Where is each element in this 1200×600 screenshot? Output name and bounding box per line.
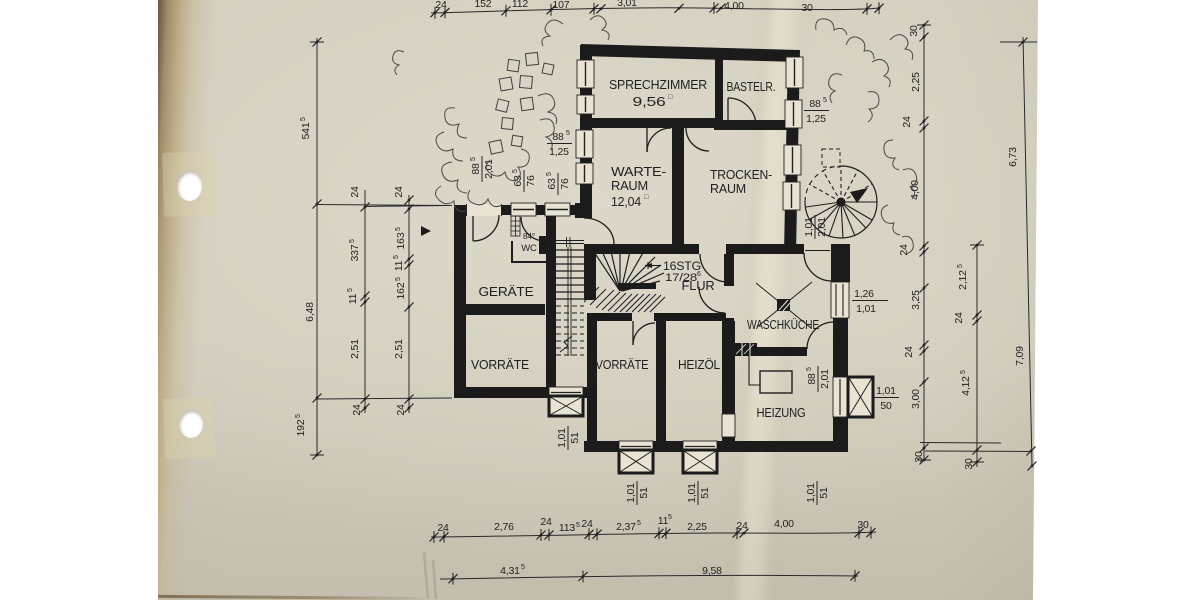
- svg-text:30: 30: [963, 458, 975, 470]
- svg-text:1,01: 1,01: [803, 217, 815, 237]
- svg-text:3,00: 3,00: [910, 389, 922, 409]
- svg-text:5: 5: [512, 169, 519, 173]
- svg-text:4,00: 4,00: [774, 518, 794, 530]
- svg-text:5: 5: [349, 239, 356, 243]
- svg-text:5: 5: [960, 370, 967, 374]
- svg-text:HEIZÖL: HEIZÖL: [678, 358, 720, 372]
- svg-text:2,37: 2,37: [616, 521, 636, 533]
- svg-text:541: 541: [300, 122, 312, 139]
- svg-text:337: 337: [349, 244, 361, 261]
- svg-text:5: 5: [806, 367, 813, 371]
- svg-text:51: 51: [699, 487, 711, 499]
- svg-text:5: 5: [470, 157, 477, 161]
- svg-text:5: 5: [566, 130, 570, 137]
- svg-text:76: 76: [559, 178, 571, 190]
- svg-text:113: 113: [559, 522, 575, 534]
- svg-text:6,48: 6,48: [304, 302, 316, 322]
- svg-text:5: 5: [395, 227, 402, 231]
- svg-text:5: 5: [393, 255, 400, 259]
- svg-text:4,31: 4,31: [500, 565, 520, 577]
- svg-text:6: 6: [697, 271, 701, 278]
- svg-text:17/28: 17/28: [665, 272, 697, 284]
- svg-text:5: 5: [668, 514, 672, 521]
- svg-text:WASCHKÜCHE: WASCHKÜCHE: [747, 318, 819, 332]
- svg-text:24: 24: [736, 520, 748, 532]
- svg-text:1,26: 1,26: [854, 288, 874, 300]
- svg-text:88: 88: [470, 163, 482, 175]
- svg-text:□: □: [644, 194, 649, 201]
- svg-text:RAUM: RAUM: [710, 182, 746, 196]
- svg-text:12,04: 12,04: [611, 194, 641, 209]
- svg-text:1,01: 1,01: [805, 483, 817, 503]
- svg-text:□: □: [668, 94, 673, 101]
- svg-text:2,12: 2,12: [957, 270, 969, 290]
- svg-text:1,01: 1,01: [556, 428, 568, 448]
- svg-text:BASTELR.: BASTELR.: [727, 80, 776, 94]
- svg-text:5: 5: [395, 277, 402, 281]
- svg-text:24: 24: [351, 404, 363, 416]
- svg-text:GERÄTE: GERÄTE: [479, 284, 535, 299]
- svg-text:TROCKEN-: TROCKEN-: [710, 168, 772, 182]
- svg-text:24: 24: [581, 518, 593, 530]
- svg-text:VORRÄTE: VORRÄTE: [471, 357, 529, 372]
- svg-text:24: 24: [435, 0, 447, 11]
- svg-text:2,51: 2,51: [349, 339, 361, 359]
- svg-text:30: 30: [908, 25, 920, 37]
- svg-text:HEIZUNG: HEIZUNG: [757, 406, 806, 420]
- svg-text:24: 24: [540, 516, 552, 528]
- svg-text:3,25: 3,25: [910, 290, 922, 310]
- svg-text:24: 24: [437, 522, 449, 534]
- svg-text:5: 5: [637, 520, 641, 527]
- svg-text:88: 88: [552, 131, 564, 143]
- svg-text:88: 88: [806, 373, 818, 385]
- svg-text:162: 162: [395, 282, 407, 299]
- svg-text:5: 5: [347, 288, 354, 292]
- svg-text:7,09: 7,09: [1014, 346, 1026, 366]
- svg-text:2,01: 2,01: [819, 369, 831, 389]
- svg-text:RAUM: RAUM: [611, 178, 648, 193]
- svg-text:11: 11: [393, 260, 405, 271]
- svg-text:2,25: 2,25: [910, 72, 922, 92]
- svg-text:50: 50: [880, 400, 892, 412]
- svg-text:30: 30: [857, 519, 869, 531]
- svg-text:24: 24: [898, 244, 910, 256]
- svg-text:1,01: 1,01: [686, 483, 698, 503]
- svg-text:2,25: 2,25: [687, 521, 707, 533]
- svg-text:5: 5: [295, 414, 302, 418]
- svg-text:63: 63: [546, 178, 558, 190]
- svg-text:4,00: 4,00: [724, 0, 744, 12]
- svg-text:5: 5: [576, 522, 580, 529]
- svg-text:6,73: 6,73: [1007, 147, 1019, 167]
- svg-text:9,56: 9,56: [633, 94, 666, 109]
- svg-text:1,01: 1,01: [876, 385, 896, 397]
- svg-text:5: 5: [521, 564, 525, 571]
- svg-text:VORRÄTE: VORRÄTE: [596, 357, 649, 372]
- svg-text:24: 24: [395, 404, 407, 416]
- svg-text:51: 51: [569, 432, 581, 444]
- svg-text:24: 24: [901, 116, 913, 128]
- svg-text:5: 5: [823, 97, 827, 104]
- svg-text:112: 112: [512, 0, 528, 10]
- svg-text:1,25: 1,25: [806, 113, 826, 125]
- svg-text:4,12: 4,12: [960, 376, 972, 396]
- svg-text:2,51: 2,51: [393, 339, 405, 359]
- svg-text:11: 11: [658, 515, 669, 527]
- svg-text:24: 24: [903, 346, 915, 358]
- svg-text:11: 11: [347, 293, 359, 304]
- svg-text:24: 24: [349, 186, 361, 198]
- svg-text:9,58: 9,58: [702, 565, 722, 577]
- svg-text:51: 51: [818, 487, 830, 499]
- svg-text:88: 88: [809, 98, 821, 110]
- svg-text:2,76: 2,76: [494, 521, 514, 533]
- svg-text:5: 5: [300, 117, 307, 121]
- svg-text:76: 76: [525, 175, 537, 187]
- svg-text:107: 107: [553, 0, 570, 11]
- svg-text:30: 30: [913, 451, 925, 463]
- svg-text:192: 192: [295, 419, 307, 436]
- svg-text:1,01: 1,01: [625, 483, 637, 503]
- svg-text:24: 24: [393, 186, 405, 198]
- svg-text:WC: WC: [521, 243, 537, 254]
- svg-text:152: 152: [475, 0, 492, 10]
- svg-text:SPRECHZIMMER: SPRECHZIMMER: [609, 77, 707, 92]
- svg-text:5: 5: [546, 172, 553, 176]
- svg-text:WARTE-: WARTE-: [611, 164, 666, 179]
- svg-text:24: 24: [953, 312, 965, 324]
- svg-text:30: 30: [801, 2, 813, 14]
- svg-text:163: 163: [395, 232, 407, 249]
- svg-text:3,01: 3,01: [617, 0, 637, 9]
- svg-text:51: 51: [638, 487, 650, 499]
- svg-text:5: 5: [957, 264, 964, 268]
- svg-text:1,01: 1,01: [856, 303, 876, 315]
- svg-text:84°: 84°: [523, 231, 535, 241]
- svg-text:2,01: 2,01: [816, 217, 828, 237]
